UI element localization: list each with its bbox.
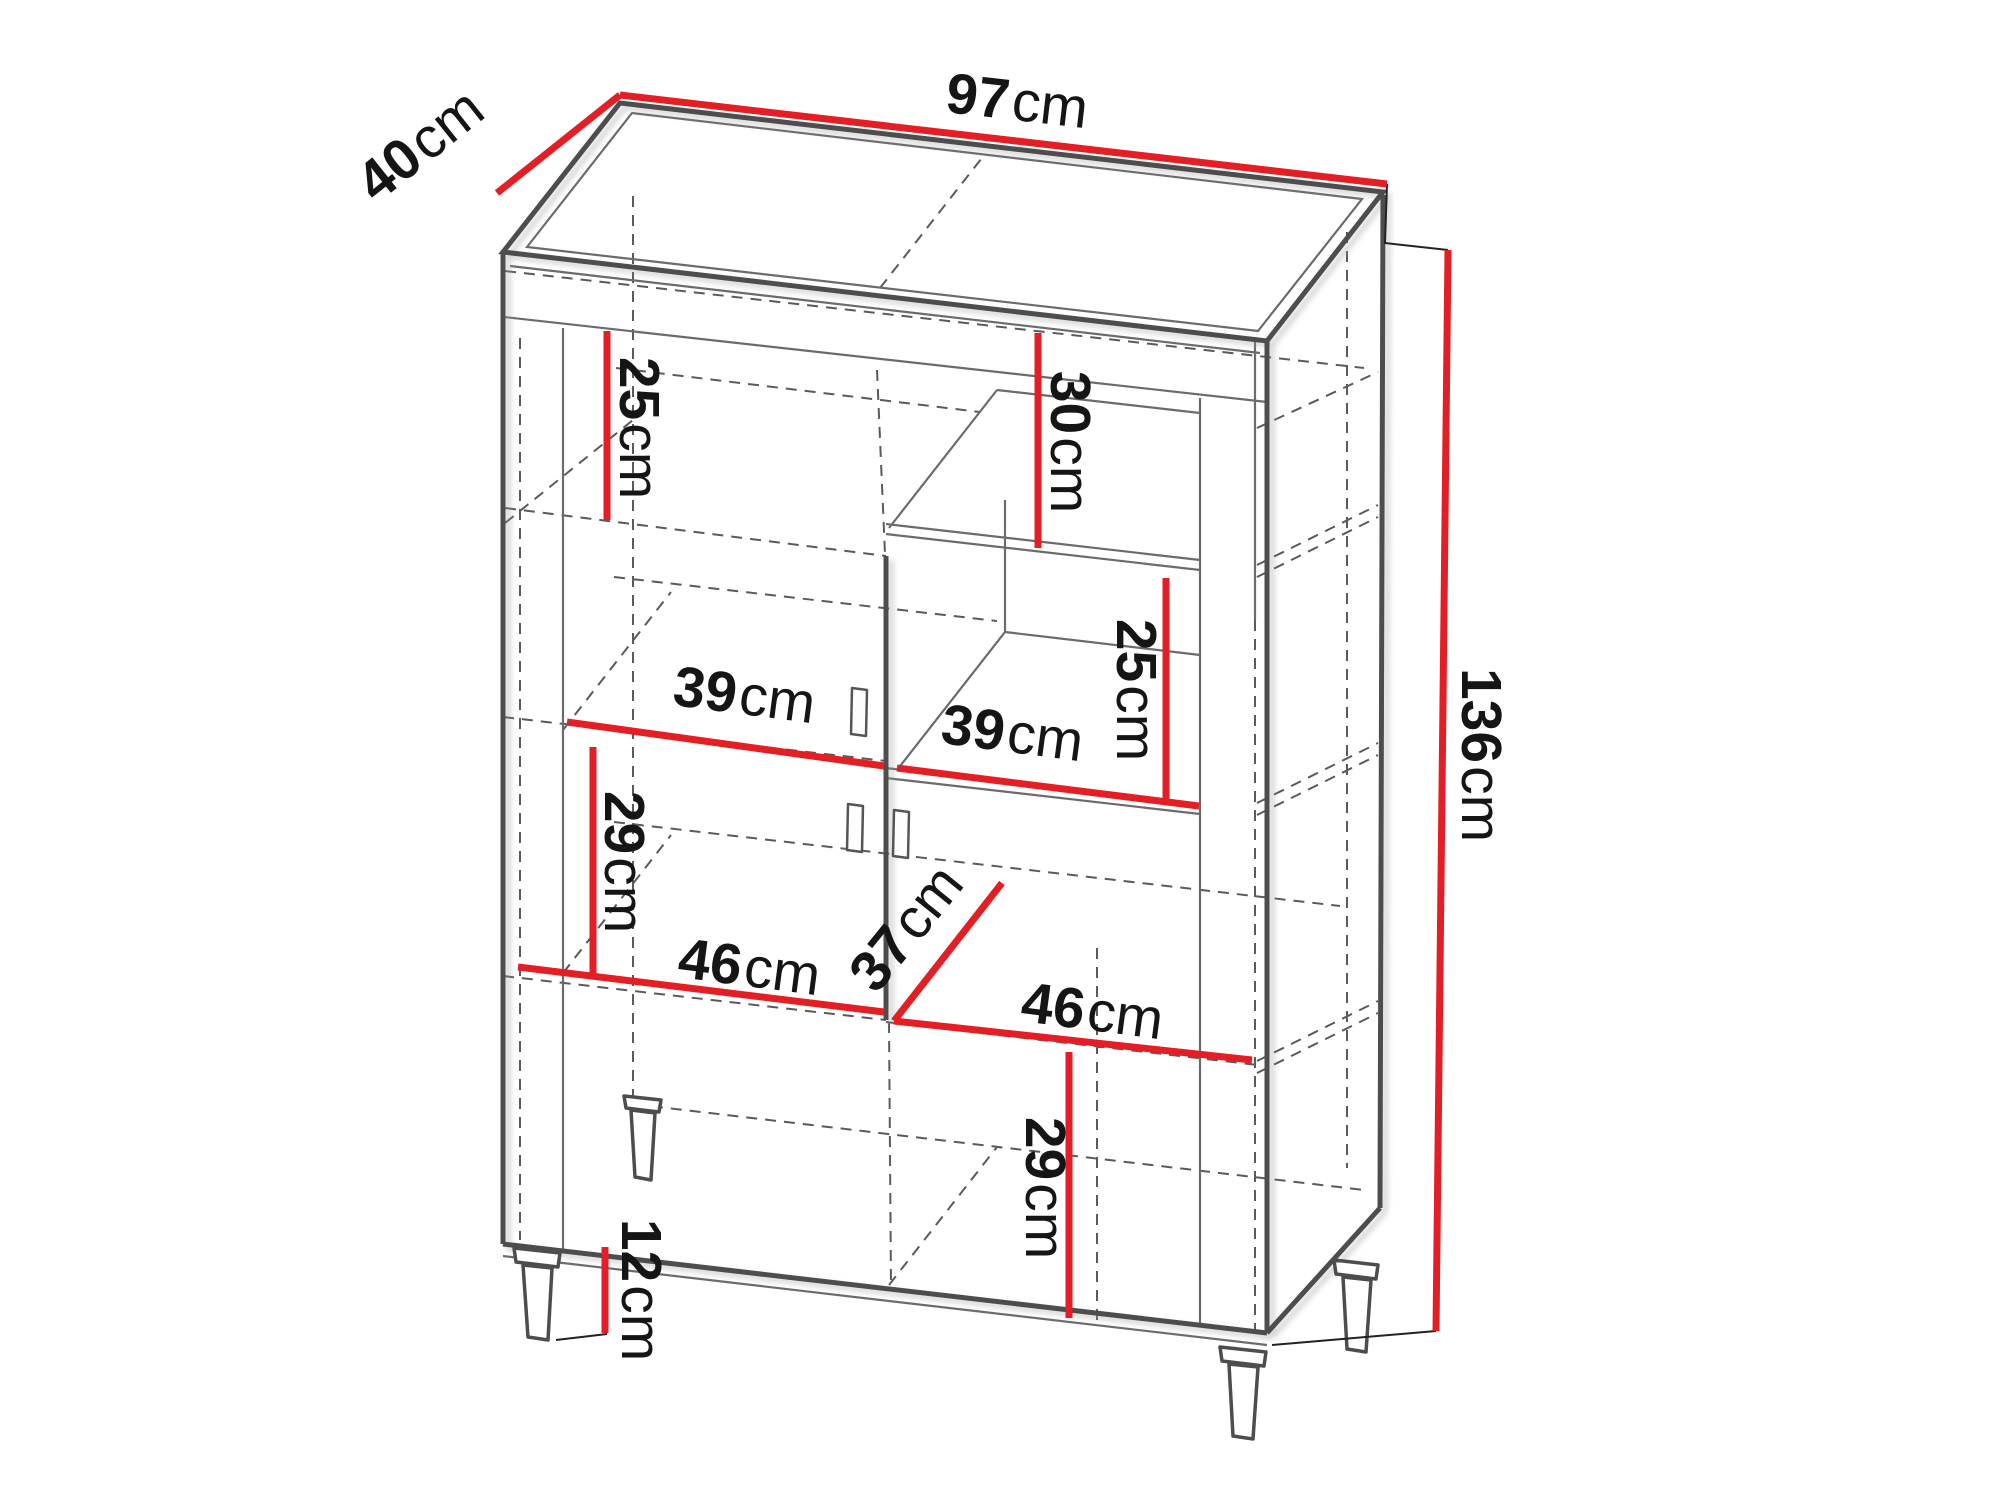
handle-lower-left-door xyxy=(847,804,863,852)
dim-value: 25 xyxy=(1104,619,1168,682)
dim-unit: cm xyxy=(1084,979,1168,1052)
dim-value: 25 xyxy=(607,357,671,420)
dim-unit: cm xyxy=(1104,685,1168,761)
dim-value: 29 xyxy=(592,791,656,854)
dimension-label-top-left-shelf: 25cm xyxy=(607,357,671,499)
dim-unit: cm xyxy=(609,1285,673,1361)
dim-unit: cm xyxy=(607,423,671,499)
dim-unit: cm xyxy=(592,857,656,933)
dim-unit: cm xyxy=(1449,766,1513,842)
dim-unit: cm xyxy=(1009,69,1092,141)
dimension-label-leg-height: 12cm xyxy=(609,1219,673,1361)
dim-unit: cm xyxy=(1013,1183,1077,1259)
dim-value: 97 xyxy=(943,61,1013,132)
dimension-label-mid-right-niche: 25cm xyxy=(1104,619,1168,761)
dimension-label-right-bottom-height: 29cm xyxy=(1013,1117,1077,1259)
dim-value: 46 xyxy=(1018,970,1089,1042)
dim-value: 30 xyxy=(1038,371,1102,434)
dim-unit: cm xyxy=(1004,701,1088,774)
dim-unit: cm xyxy=(741,935,825,1008)
dim-value: 39 xyxy=(670,654,741,726)
dim-value: 12 xyxy=(609,1219,673,1282)
dim-value: 46 xyxy=(675,926,746,998)
dim-value: 136 xyxy=(1449,668,1513,763)
handle-lower-right-door xyxy=(893,810,909,858)
cabinet-dimension-diagram: 40cm 97cm 136cm 25cm 30cm 25cm 39cm 39cm… xyxy=(0,0,2000,1499)
handle-upper-left-door xyxy=(851,688,867,736)
dim-value: 29 xyxy=(1013,1117,1077,1180)
dim-unit: cm xyxy=(736,663,820,736)
dimension-label-top-right-niche: 30cm xyxy=(1038,371,1102,513)
dimension-label-height: 136cm xyxy=(1449,668,1513,842)
dim-value: 39 xyxy=(938,692,1009,764)
dimension-label-left-mid-height: 29cm xyxy=(592,791,656,933)
dim-unit: cm xyxy=(1038,437,1102,513)
